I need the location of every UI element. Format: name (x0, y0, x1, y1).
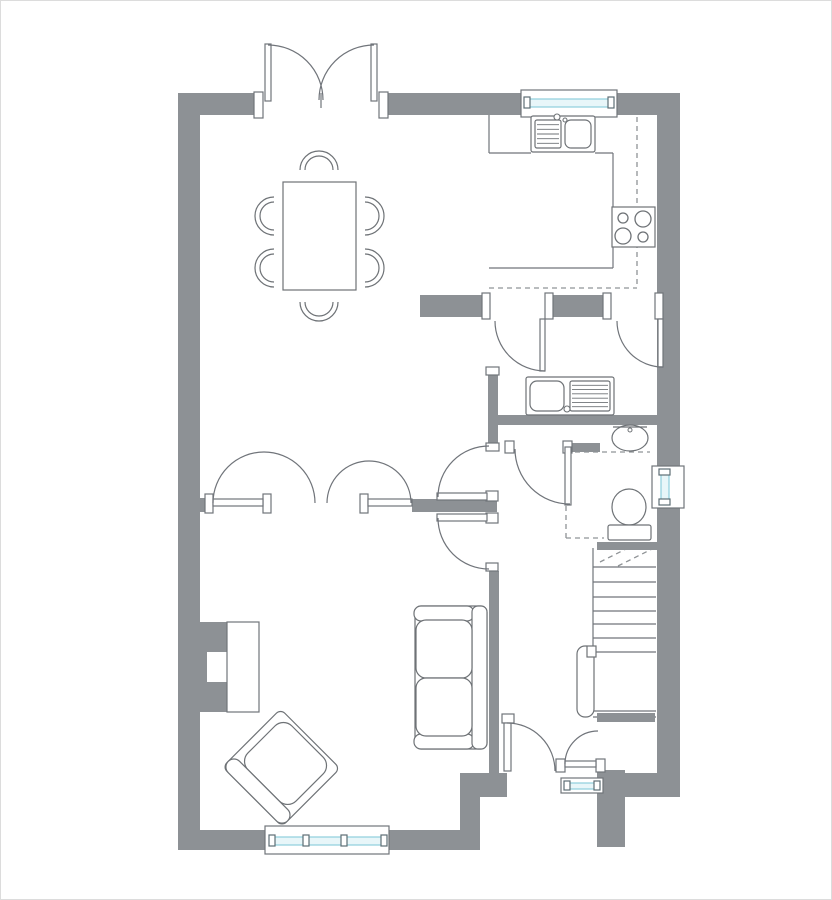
kitchen-tap (554, 114, 560, 120)
door-frame (486, 513, 498, 523)
door-frame (379, 92, 388, 118)
door-leaf (504, 723, 511, 771)
kitchen-tap-spout (563, 118, 567, 122)
wall-segment (388, 93, 525, 115)
wall-segment (489, 571, 499, 773)
door-frame (482, 293, 490, 319)
utility-tap (564, 406, 570, 412)
dining-table (283, 182, 356, 290)
window-mullion-tick (659, 499, 670, 505)
door-leaf (368, 499, 412, 506)
door-frame (205, 494, 213, 513)
wall-segment (460, 797, 480, 830)
wall-segment (597, 542, 657, 550)
door-frame (655, 293, 663, 319)
door-frame (486, 491, 498, 501)
page-background (0, 0, 832, 900)
stairs-newel-post (587, 646, 596, 657)
wall-segment (178, 830, 268, 850)
floor-plan-page (0, 0, 832, 900)
wall-segment (420, 295, 482, 317)
window-mullion-tick (341, 835, 347, 846)
window-mullion-tick (608, 97, 614, 108)
door-frame (502, 714, 514, 723)
door-leaf (213, 499, 263, 506)
sofa-arm (414, 606, 474, 621)
door-frame (545, 293, 553, 319)
window-mullion-tick (524, 97, 530, 108)
wall-segment (663, 295, 680, 317)
window-mullion-tick (381, 835, 387, 846)
sofa-cushion (416, 620, 472, 678)
door-frame (263, 494, 271, 513)
wall-segment (553, 295, 603, 317)
door-leaf (658, 319, 663, 367)
wall-segment (657, 508, 680, 797)
door-frame (596, 759, 605, 772)
fireplace-notch (207, 652, 229, 682)
window-glazing (527, 99, 611, 107)
window-glazing (661, 472, 669, 502)
wall-segment (597, 713, 655, 722)
sofa-cushion (416, 678, 472, 736)
door-frame (360, 494, 368, 513)
wall-segment (488, 375, 498, 443)
window-mullion-tick (303, 835, 309, 846)
wall-segment (460, 773, 507, 797)
wall-segment (613, 93, 680, 115)
window-mullion-tick (564, 781, 570, 790)
window-glazing (567, 783, 597, 789)
floor-plan-canvas (0, 0, 832, 900)
sofa-back (472, 606, 487, 749)
window-mullion-tick (659, 469, 670, 475)
wall-segment (657, 115, 680, 466)
window-mullion-tick (269, 835, 275, 846)
door-frame (505, 441, 514, 453)
door-leaf (565, 447, 571, 505)
window-glazing (271, 837, 383, 845)
kitchen-sink-bowl (565, 120, 591, 148)
wall-segment (625, 773, 680, 797)
door-leaf (371, 44, 377, 101)
door-leaf (565, 761, 596, 767)
door-leaf (437, 514, 487, 521)
wall-segment (178, 93, 200, 850)
wall-segment (412, 499, 497, 512)
door-leaf (265, 44, 271, 101)
door-frame (603, 293, 611, 319)
wash-basin (612, 425, 648, 451)
door-frame (556, 759, 565, 772)
door-frame (254, 92, 263, 118)
door-frame (486, 563, 498, 571)
door-frame (486, 443, 499, 451)
fireplace-hearth (227, 622, 259, 712)
door-leaf (437, 493, 487, 500)
window-mullion-tick (594, 781, 600, 790)
door-frame (486, 367, 499, 375)
wall-segment (387, 830, 480, 850)
toilet-bowl (612, 489, 646, 525)
utility-sink-bowl (530, 381, 564, 411)
wall-segment (572, 443, 600, 452)
wall-segment (498, 415, 657, 425)
door-leaf (540, 319, 545, 371)
toilet-cistern (608, 525, 651, 540)
